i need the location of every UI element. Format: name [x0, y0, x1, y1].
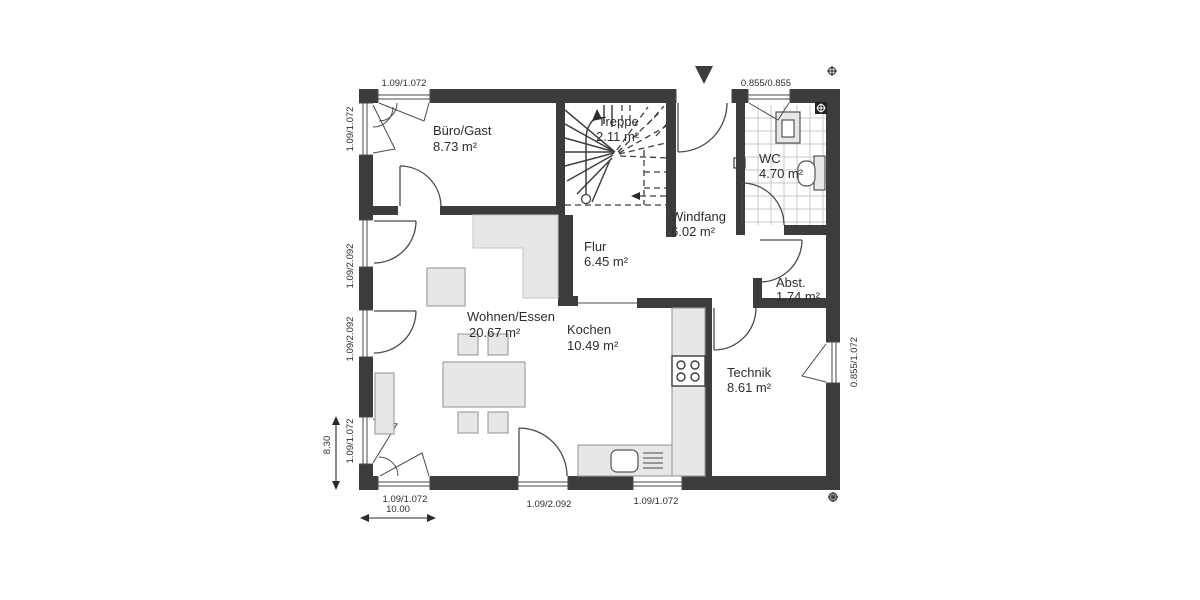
entrance-door — [676, 89, 732, 152]
window-bottom-left — [378, 453, 430, 490]
dim-left-1: 1.09/1.072 — [345, 107, 356, 152]
burner — [691, 373, 699, 381]
room-area-wc: 4.70 m² — [759, 166, 804, 181]
wall-segment — [359, 89, 378, 103]
window-top-buero — [378, 89, 430, 121]
dim-bottom-center: 1.09/2.092 — [527, 499, 572, 510]
wall-segment — [430, 476, 518, 490]
wall-segment — [558, 215, 573, 298]
terrace-door-bottom — [518, 428, 568, 490]
burner — [677, 361, 685, 369]
wall-segment — [826, 103, 840, 342]
dim-bottom-right: 1.09/1.072 — [634, 496, 679, 507]
toilet-tank — [814, 156, 825, 190]
wall-segment — [736, 103, 745, 235]
wall-segment — [732, 89, 748, 103]
wall-segment — [359, 476, 378, 490]
room-area-technik: 8.61 m² — [727, 380, 772, 395]
sink — [611, 450, 638, 472]
wall-segment — [359, 464, 373, 476]
wall-segment — [359, 267, 373, 310]
room-area-flur: 6.45 m² — [584, 254, 629, 269]
room-label-treppe: Treppe — [598, 114, 639, 129]
floor-plan-drawing: Büro/Gast 8.73 m² Treppe 2.11 m² WC 4.70… — [0, 0, 1200, 600]
technik-door — [714, 308, 756, 350]
wall-segment — [440, 206, 565, 215]
chair — [488, 412, 508, 433]
wall-segment — [430, 89, 676, 103]
wall-segment — [359, 357, 373, 417]
wall-segment — [558, 296, 578, 306]
wall-segment — [556, 103, 565, 206]
dim-top-right: 0.855/0.855 — [741, 78, 791, 89]
stair-upper-arrow — [631, 192, 640, 200]
room-area-buero: 8.73 m² — [433, 139, 478, 154]
french-window-left-2 — [359, 220, 416, 267]
armchair — [427, 268, 465, 306]
dining-table — [443, 362, 525, 407]
dim-left-2: 1.09/2.092 — [345, 244, 356, 289]
overall-height-dimension: 8.30 — [322, 416, 340, 490]
room-label-abst: Abst. — [776, 275, 806, 290]
room-label-buero: Büro/Gast — [433, 123, 492, 138]
dim-overall-height: 8.30 — [322, 436, 333, 455]
window-right-technik — [802, 342, 840, 383]
room-area-abst: 1.74 m² — [776, 289, 821, 304]
furniture — [375, 215, 705, 476]
stair-start-circle — [582, 195, 591, 204]
wall-segment — [736, 225, 740, 235]
wall-segment — [637, 298, 712, 308]
overall-width-dimension: 10.00 — [360, 504, 436, 522]
room-label-wc: WC — [759, 151, 781, 166]
chair — [458, 412, 478, 433]
wall-segment — [682, 476, 840, 490]
room-label-flur: Flur — [584, 239, 607, 254]
burner — [691, 361, 699, 369]
survey-point-icon-bottom — [828, 492, 838, 502]
window-left-1 — [359, 103, 395, 155]
room-label-technik: Technik — [727, 365, 772, 380]
dim-right-1: 0.855/1.072 — [849, 337, 860, 387]
room-area-treppe: 2.11 m² — [596, 129, 640, 144]
dim-left-4: 1.09/1.072 — [345, 419, 356, 464]
burner — [677, 373, 685, 381]
wall-segment — [753, 278, 762, 298]
wc-door — [742, 183, 784, 225]
room-label-kochen: Kochen — [567, 322, 611, 337]
buero-door — [400, 166, 441, 206]
wall-segment — [568, 476, 633, 490]
room-label-wohnen: Wohnen/Essen — [467, 309, 555, 324]
room-area-wohnen: 20.67 m² — [469, 325, 521, 340]
wall-segment — [373, 206, 398, 215]
dim-overall-width: 10.00 — [386, 504, 410, 515]
kitchen-counter-vertical — [672, 308, 705, 476]
room-area-kochen: 10.49 m² — [567, 338, 619, 353]
room-area-windfang: 6.02 m² — [671, 224, 716, 239]
dim-top-left: 1.09/1.072 — [382, 78, 427, 89]
wall-segment — [359, 155, 373, 220]
sofa — [375, 373, 394, 434]
survey-point-icon-top — [827, 66, 837, 76]
washbasin-bowl — [782, 120, 794, 137]
floor-plan-page: Büro/Gast 8.73 m² Treppe 2.11 m² WC 4.70… — [0, 0, 1200, 600]
entrance-marker-icon — [695, 66, 713, 84]
french-window-left-3 — [359, 310, 416, 357]
wall-segment — [826, 383, 840, 476]
room-label-windfang: Windfang — [671, 209, 726, 224]
wall-segment — [790, 89, 840, 103]
sideboard — [473, 215, 558, 298]
stove — [672, 356, 705, 386]
wall-segment — [784, 225, 826, 235]
dim-left-3: 1.09/2.092 — [345, 317, 356, 362]
